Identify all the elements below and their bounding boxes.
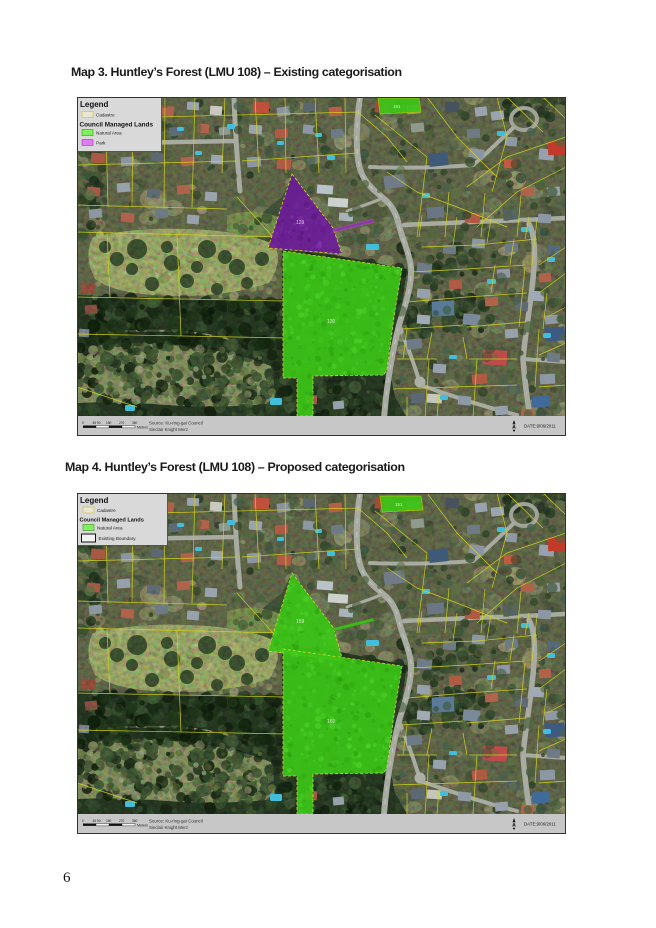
svg-text:130: 130 (327, 319, 336, 325)
svg-text:Existing Boundary: Existing Boundary (99, 536, 137, 541)
svg-text:180: 180 (106, 421, 112, 425)
svg-text:Park: Park (96, 141, 106, 146)
svg-text:0: 0 (82, 421, 84, 425)
svg-text:159: 159 (296, 619, 305, 625)
svg-text:Council Managed Lands: Council Managed Lands (80, 518, 144, 524)
svg-text:180: 180 (106, 819, 112, 823)
svg-text:Natural Area: Natural Area (97, 526, 123, 531)
svg-text:0: 0 (82, 819, 84, 823)
svg-text:270: 270 (119, 421, 125, 425)
svg-text:Natural Area: Natural Area (96, 131, 122, 136)
svg-text:45 90: 45 90 (93, 819, 101, 823)
svg-text:Cadastre: Cadastre (97, 508, 116, 513)
svg-text:Source: Ku-ring-gai Council: Source: Ku-ring-gai Council (149, 421, 203, 426)
svg-text:Meters: Meters (137, 426, 148, 430)
svg-text:Legend: Legend (80, 100, 109, 109)
svg-text:Sinclair Knight Merz: Sinclair Knight Merz (149, 825, 188, 830)
svg-text:Source: Ku-ring-gai Council: Source: Ku-ring-gai Council (149, 819, 203, 824)
svg-text:129: 129 (296, 220, 305, 226)
svg-text:270: 270 (119, 819, 125, 823)
svg-text:151: 151 (393, 104, 401, 109)
svg-text:151: 151 (395, 502, 403, 507)
svg-text:360: 360 (132, 421, 138, 425)
svg-text:45 90: 45 90 (93, 421, 101, 425)
svg-text:Meters: Meters (137, 824, 148, 828)
svg-text:DATE:9/06/2011: DATE:9/06/2011 (524, 822, 556, 827)
svg-text:DATE:9/06/2011: DATE:9/06/2011 (524, 424, 556, 429)
svg-text:360: 360 (132, 819, 138, 823)
svg-text:160: 160 (327, 719, 336, 725)
svg-text:Cadastre: Cadastre (96, 113, 115, 118)
svg-text:Sinclair Knight Merz: Sinclair Knight Merz (149, 427, 188, 432)
svg-text:Legend: Legend (80, 496, 109, 505)
svg-text:Council Managed Lands: Council Managed Lands (80, 122, 154, 129)
